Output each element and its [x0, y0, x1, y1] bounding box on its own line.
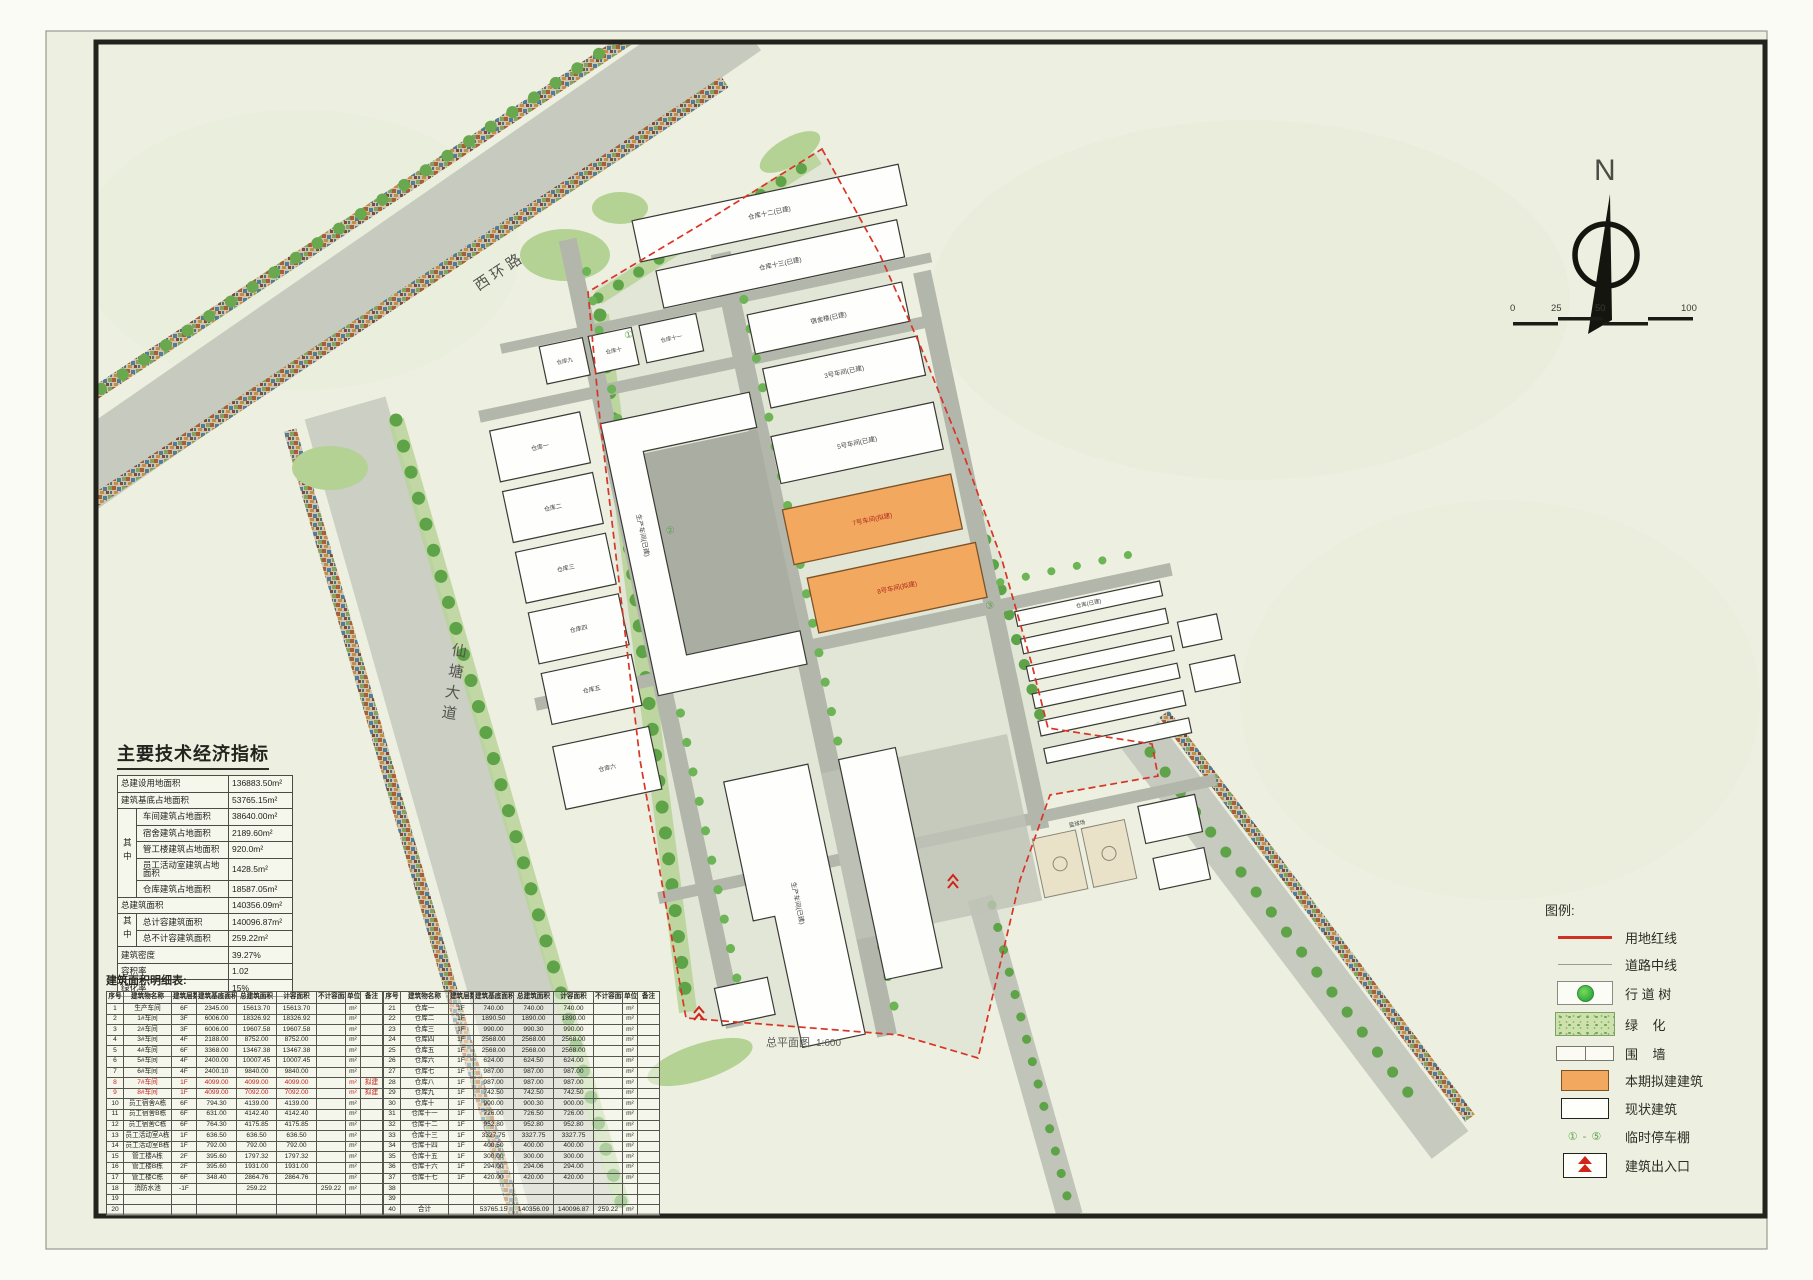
table-cell: 37	[384, 1173, 401, 1184]
table-cell: 员工宿舍C栋	[124, 1120, 172, 1131]
table-cell: 25	[384, 1046, 401, 1057]
column-header: 建筑基底面积	[197, 992, 237, 1004]
paper-blotch	[1240, 500, 1760, 900]
table-cell: 仓库八	[401, 1078, 449, 1089]
proposed-swatch	[1561, 1070, 1609, 1091]
table-cell: m²	[346, 1035, 361, 1046]
table-cell: 仓库六	[401, 1056, 449, 1067]
table-row: 32仓库十二1F952.80952.80952.80m²	[384, 1120, 660, 1131]
table-cell: 19607.58	[237, 1025, 277, 1036]
table-row: 34仓库十四1F400.50400.00400.00m²	[384, 1141, 660, 1152]
table-cell: 4F	[172, 1056, 197, 1067]
table-cell	[317, 1004, 346, 1015]
table-cell: 742.50	[474, 1088, 514, 1099]
table-cell: 2#车间	[124, 1025, 172, 1036]
table-row: 37仓库十七1F420.00420.00420.00m²	[384, 1173, 660, 1184]
table-cell	[277, 1184, 317, 1195]
table-cell	[237, 1205, 277, 1216]
table-cell	[638, 1173, 660, 1184]
table-row: 21#车间3F6006.0018326.9218326.92m²	[107, 1014, 383, 1025]
table-cell: 3327.75	[554, 1131, 594, 1142]
legend-swatch-column	[1545, 1153, 1625, 1178]
table-cell: 395.60	[197, 1162, 237, 1173]
table-cell	[317, 1141, 346, 1152]
legend-swatch-column	[1545, 1070, 1625, 1091]
indicator-label: 宿舍建筑占地面积	[136, 825, 228, 842]
indicator-value: 140356.09m²	[229, 897, 293, 914]
table-header-row: 序号建筑物名称建筑层数建筑基底面积总建筑面积计容面积不计容面积单位备注	[107, 992, 383, 1004]
table-cell: m²	[623, 1035, 638, 1046]
table-cell: 8752.00	[277, 1035, 317, 1046]
table-cell: 900.00	[474, 1099, 514, 1110]
table-cell: 29	[384, 1088, 401, 1099]
indicator-row: 其中车间建筑占地面积38640.00m²	[118, 809, 293, 826]
table-cell: 987.00	[514, 1078, 554, 1089]
table-cell: 140096.87	[554, 1205, 594, 1216]
table-cell: m²	[346, 1162, 361, 1173]
entrance-swatch	[1563, 1153, 1607, 1178]
indicator-group-label: 其中	[122, 838, 131, 865]
legend-panel: 图例: 用地红线道路中线行 道 树绿 化围 墙本期拟建建筑现状建筑① - ⑤临时…	[1545, 900, 1750, 1185]
table-cell: 400.00	[554, 1141, 594, 1152]
table-cell: -1F	[172, 1184, 197, 1195]
indicators-table: 总建设用地面积136883.50m²建筑基底占地面积53765.15m²其中车间…	[117, 775, 293, 997]
table-cell: m²	[623, 1078, 638, 1089]
table-cell: 1F	[172, 1141, 197, 1152]
indicator-row: 管工楼建筑占地面积920.0m²	[118, 842, 293, 859]
table-row: 25仓库五1F2568.002568.002568.00m²	[384, 1046, 660, 1057]
table-cell: 1797.32	[277, 1152, 317, 1163]
indicator-row: 建筑基底占地面积53765.15m²	[118, 792, 293, 809]
building-area-panel: 建筑面积明细表: 序号建筑物名称建筑层数建筑基底面积总建筑面积计容面积不计容面积…	[106, 972, 658, 1216]
table-row: 65#车间4F2400.0010007.4510007.45m²	[107, 1056, 383, 1067]
table-cell	[172, 1205, 197, 1216]
table-cell	[449, 1205, 474, 1216]
table-cell: 34	[384, 1141, 401, 1152]
table-cell	[317, 1099, 346, 1110]
table-cell	[197, 1205, 237, 1216]
table-cell: 1F	[172, 1088, 197, 1099]
table-cell	[317, 1152, 346, 1163]
column-header: 建筑层数	[449, 992, 474, 1004]
table-cell: 16	[107, 1162, 124, 1173]
column-header: 单位	[623, 992, 638, 1004]
table-cell: 792.00	[277, 1141, 317, 1152]
table-cell: 2568.00	[554, 1035, 594, 1046]
table-cell: 1F	[449, 1078, 474, 1089]
north-label: N	[1594, 154, 1616, 187]
legend-swatch-column	[1545, 964, 1625, 965]
table-cell: 6F	[172, 1173, 197, 1184]
table-cell: 742.50	[554, 1088, 594, 1099]
legend-item: ① - ⑤临时停车棚	[1545, 1126, 1750, 1146]
table-cell: 987.00	[514, 1067, 554, 1078]
column-header: 备注	[361, 992, 383, 1004]
indicator-label: 总不计容建筑面积	[136, 930, 228, 947]
table-cell: m²	[346, 1046, 361, 1057]
building-area-table-right: 序号建筑物名称建筑层数建筑基底面积总建筑面积计容面积不计容面积单位备注21仓库一…	[383, 991, 660, 1216]
table-cell: 1	[107, 1004, 124, 1015]
scale-tick: 50	[1595, 303, 1606, 314]
table-cell: 3368.00	[197, 1046, 237, 1057]
table-cell	[638, 1184, 660, 1195]
table-cell: 1890.00	[554, 1014, 594, 1025]
table-cell	[401, 1194, 449, 1205]
table-cell	[554, 1194, 594, 1205]
indicator-row: 总建设用地面积136883.50m²	[118, 776, 293, 793]
table-cell: 15	[107, 1152, 124, 1163]
table-cell: 1F	[449, 1152, 474, 1163]
table-cell: 管工楼A栋	[124, 1152, 172, 1163]
table-cell: 18	[107, 1184, 124, 1195]
table-cell: 1F	[449, 1162, 474, 1173]
legend-label: 用地红线	[1625, 928, 1677, 947]
table-row: 23仓库三1F990.00990.30990.00m²	[384, 1025, 660, 1036]
table-cell: 5	[107, 1046, 124, 1057]
street-tree-swatch	[1557, 981, 1613, 1005]
table-cell: 2400.00	[197, 1056, 237, 1067]
table-cell: 987.00	[474, 1078, 514, 1089]
indicator-row: 其中总计容建筑面积140096.87m²	[118, 914, 293, 931]
red-line-swatch	[1558, 936, 1612, 939]
table-cell: 1F	[449, 1025, 474, 1036]
table-cell	[638, 1067, 660, 1078]
table-cell	[594, 1141, 623, 1152]
table-cell: m²	[623, 1152, 638, 1163]
column-header: 单位	[346, 992, 361, 1004]
table-row: 54#车间6F3368.0013467.3813467.38m²	[107, 1046, 383, 1057]
indicator-value: 39.27%	[229, 947, 293, 964]
table-cell: 4142.40	[237, 1109, 277, 1120]
table-cell	[594, 1025, 623, 1036]
indicator-row: 宿舍建筑占地面积2189.60m²	[118, 825, 293, 842]
table-cell: 952.80	[474, 1120, 514, 1131]
table-cell	[594, 1120, 623, 1131]
table-cell: 987.00	[554, 1078, 594, 1089]
table-cell	[317, 1046, 346, 1057]
table-cell: 792.00	[197, 1141, 237, 1152]
table-cell	[514, 1184, 554, 1195]
table-cell	[361, 1131, 383, 1142]
table-cell: 420.00	[554, 1173, 594, 1184]
table-cell: 1F	[449, 1173, 474, 1184]
indicator-group-label: 其中	[122, 916, 131, 943]
wall-swatch	[1556, 1046, 1614, 1061]
table-cell: 仓库一	[401, 1004, 449, 1015]
indicator-value: 920.0m²	[229, 842, 293, 859]
table-cell: 消防水池	[124, 1184, 172, 1195]
indicator-row: 建筑密度39.27%	[118, 947, 293, 964]
table-cell: 2345.00	[197, 1004, 237, 1015]
table-cell: 726.00	[474, 1109, 514, 1120]
table-cell: 13	[107, 1131, 124, 1142]
table-cell: 624.00	[554, 1056, 594, 1067]
table-cell: 15613.70	[277, 1004, 317, 1015]
table-cell	[623, 1184, 638, 1195]
table-cell: 32	[384, 1120, 401, 1131]
table-cell: m²	[346, 1131, 361, 1142]
table-cell	[594, 1035, 623, 1046]
table-cell: 仓库十六	[401, 1162, 449, 1173]
table-cell: m²	[346, 1099, 361, 1110]
table-cell: 4175.85	[277, 1120, 317, 1131]
table-cell: 8752.00	[237, 1035, 277, 1046]
caption-text: 总平面图	[766, 1035, 810, 1049]
table-row: 29仓库九1F742.50742.50742.50m²	[384, 1088, 660, 1099]
table-cell: 仓库十七	[401, 1173, 449, 1184]
indicator-label: 总计容建筑面积	[136, 914, 228, 931]
column-header: 计容面积	[277, 992, 317, 1004]
indicator-label: 建筑密度	[118, 947, 229, 964]
table-row: 17管工楼C栋6F348.402864.762864.76m²	[107, 1173, 383, 1184]
table-row: 24仓库四1F2568.002568.002568.00m²	[384, 1035, 660, 1046]
indicator-value: 259.22m²	[229, 930, 293, 947]
table-cell: 10007.45	[237, 1056, 277, 1067]
column-header: 序号	[107, 992, 124, 1004]
table-cell	[317, 1131, 346, 1142]
table-cell: 2568.00	[514, 1035, 554, 1046]
indicator-value: 140096.87m²	[229, 914, 293, 931]
table-cell	[361, 1109, 383, 1120]
paper-blotch	[930, 120, 1570, 480]
table-cell: m²	[623, 1120, 638, 1131]
table-row: 35仓库十五1F300.00300.00300.00m²	[384, 1152, 660, 1163]
table-cell: 4F	[172, 1035, 197, 1046]
table-cell: 6	[107, 1056, 124, 1067]
table-cell: 2864.76	[237, 1173, 277, 1184]
table-cell: 仓库十	[401, 1099, 449, 1110]
table-cell: 6F	[172, 1004, 197, 1015]
scale-tick: 25	[1551, 303, 1562, 314]
table-cell: 8	[107, 1078, 124, 1089]
table-cell: 952.80	[514, 1120, 554, 1131]
indicators-title: 主要技术经济指标	[117, 740, 269, 770]
table-cell: 990.30	[514, 1025, 554, 1036]
table-cell: 拟建	[361, 1078, 383, 1089]
table-cell: 仓库七	[401, 1067, 449, 1078]
table-cell	[594, 1152, 623, 1163]
table-cell: m²	[623, 1162, 638, 1173]
legend-label: 建筑出入口	[1625, 1156, 1690, 1175]
table-cell	[361, 1025, 383, 1036]
table-cell	[638, 1109, 660, 1120]
table-cell: m²	[623, 1131, 638, 1142]
table-cell: m²	[346, 1184, 361, 1195]
table-cell: 1F	[449, 1131, 474, 1142]
table-cell	[317, 1056, 346, 1067]
table-cell: 900.00	[554, 1099, 594, 1110]
table-cell: m²	[346, 1014, 361, 1025]
table-header-row: 序号建筑物名称建筑层数建筑基底面积总建筑面积计容面积不计容面积单位备注	[384, 992, 660, 1004]
column-header: 建筑层数	[172, 992, 197, 1004]
column-header: 建筑基底面积	[474, 992, 514, 1004]
table-cell: 4099.00	[237, 1078, 277, 1089]
table-cell: 1F	[172, 1078, 197, 1089]
table-cell	[346, 1194, 361, 1205]
scale-tick: 100	[1681, 303, 1697, 314]
table-cell	[317, 1035, 346, 1046]
table-cell	[317, 1205, 346, 1216]
table-cell: 990.00	[474, 1025, 514, 1036]
table-cell	[317, 1078, 346, 1089]
legend-item: 围 墙	[1545, 1043, 1750, 1063]
table-cell: 4#车间	[124, 1046, 172, 1057]
indicator-label: 员工活动室建筑占地面积	[136, 858, 228, 881]
table-cell: 140356.09	[514, 1205, 554, 1216]
indicator-value: 1428.5m²	[229, 858, 293, 881]
table-cell: 3327.75	[514, 1131, 554, 1142]
table-cell: 合计	[401, 1205, 449, 1216]
legend-swatch-column	[1545, 1012, 1625, 1036]
table-row: 28仓库八1F987.00987.00987.00m²	[384, 1078, 660, 1089]
table-cell: m²	[623, 1046, 638, 1057]
table-cell	[594, 1088, 623, 1099]
indicator-group-cell: 其中	[118, 914, 137, 947]
table-cell: 管工楼C栋	[124, 1173, 172, 1184]
table-cell: 39	[384, 1194, 401, 1205]
legend-label: 本期拟建建筑	[1625, 1071, 1703, 1090]
table-cell: 259.22	[317, 1184, 346, 1195]
center-line-swatch	[1558, 964, 1612, 965]
indicators-panel: 主要技术经济指标 总建设用地面积136883.50m²建筑基底占地面积53765…	[117, 740, 293, 997]
column-header: 序号	[384, 992, 401, 1004]
table-cell	[594, 1067, 623, 1078]
table-cell: 294.06	[514, 1162, 554, 1173]
indicator-label: 管工楼建筑占地面积	[136, 842, 228, 859]
table-cell	[172, 1194, 197, 1205]
table-cell: 2864.76	[277, 1173, 317, 1184]
table-cell	[361, 1014, 383, 1025]
table-cell: 987.00	[554, 1067, 594, 1078]
table-cell: 742.50	[514, 1088, 554, 1099]
table-cell: m²	[346, 1025, 361, 1036]
indicator-value: 136883.50m²	[229, 776, 293, 793]
table-cell	[474, 1184, 514, 1195]
table-cell	[361, 1046, 383, 1057]
table-cell: m²	[623, 1014, 638, 1025]
table-cell	[594, 1078, 623, 1089]
legend-swatch-column	[1545, 981, 1625, 1005]
table-cell	[638, 1099, 660, 1110]
table-cell: 300.00	[474, 1152, 514, 1163]
table-cell: 631.00	[197, 1109, 237, 1120]
indicator-label: 建筑基底占地面积	[118, 792, 229, 809]
table-cell: 400.50	[474, 1141, 514, 1152]
table-cell: m²	[623, 1088, 638, 1099]
table-cell: 1F	[172, 1131, 197, 1142]
table-cell: m²	[346, 1056, 361, 1067]
table-cell	[638, 1194, 660, 1205]
table-cell	[638, 1088, 660, 1099]
table-cell: 2568.00	[474, 1046, 514, 1057]
legend-item: 现状建筑	[1545, 1098, 1750, 1119]
table-cell	[361, 1205, 383, 1216]
table-cell: 348.40	[197, 1173, 237, 1184]
table-cell: 4175.85	[237, 1120, 277, 1131]
table-cell	[594, 1184, 623, 1195]
legend-swatch-column	[1545, 1046, 1625, 1061]
indicator-row: 员工活动室建筑占地面积1428.5m²	[118, 858, 293, 881]
table-cell: 24	[384, 1035, 401, 1046]
table-cell: 900.30	[514, 1099, 554, 1110]
table-cell: 10007.45	[277, 1056, 317, 1067]
table-cell	[623, 1194, 638, 1205]
table-cell: 294.00	[554, 1162, 594, 1173]
building-area-title: 建筑面积明细表:	[106, 972, 658, 988]
table-cell: 259.22	[594, 1205, 623, 1216]
table-row: 12员工宿舍C栋6F764.304175.854175.85m²	[107, 1120, 383, 1131]
table-cell: 987.00	[474, 1067, 514, 1078]
indicator-label: 车间建筑占地面积	[136, 809, 228, 826]
table-row: 16管工楼B栋2F395.601931.001931.00m²	[107, 1162, 383, 1173]
table-cell: m²	[346, 1067, 361, 1078]
table-cell	[124, 1194, 172, 1205]
indicator-row: 总建筑面积140356.09m²	[118, 897, 293, 914]
table-cell: 9	[107, 1088, 124, 1099]
table-cell	[317, 1025, 346, 1036]
table-cell: 28	[384, 1078, 401, 1089]
table-cell: 40	[384, 1205, 401, 1216]
table-cell: m²	[623, 1025, 638, 1036]
legend-item: 绿 化	[1545, 1012, 1750, 1036]
table-row: 33仓库十三1F3327.753327.753327.75m²	[384, 1131, 660, 1142]
table-cell	[361, 1184, 383, 1195]
table-cell: 4139.00	[277, 1099, 317, 1110]
table-cell: 21	[384, 1004, 401, 1015]
table-cell: 仓库五	[401, 1046, 449, 1057]
table-cell: 31	[384, 1109, 401, 1120]
table-cell: 38	[384, 1184, 401, 1195]
table-cell: 36	[384, 1162, 401, 1173]
legend-label: 现状建筑	[1625, 1099, 1677, 1118]
table-cell: 12	[107, 1120, 124, 1131]
table-cell	[317, 1194, 346, 1205]
table-cell: 2	[107, 1014, 124, 1025]
table-cell: 19607.58	[277, 1025, 317, 1036]
table-row: 38	[384, 1184, 660, 1195]
table-row: 1生产车间6F2345.0015613.7015613.70m²	[107, 1004, 383, 1015]
building-area-table-left: 序号建筑物名称建筑层数建筑基底面积总建筑面积计容面积不计容面积单位备注1生产车间…	[106, 991, 383, 1216]
table-cell	[594, 1109, 623, 1120]
table-cell: 6F	[172, 1120, 197, 1131]
table-row: 14员工活动室B栋1F792.00792.00792.00m²	[107, 1141, 383, 1152]
table-cell: 仓库三	[401, 1025, 449, 1036]
table-cell: 35	[384, 1152, 401, 1163]
table-cell: 仓库四	[401, 1035, 449, 1046]
table-cell: 1F	[449, 1035, 474, 1046]
table-cell: 9840.00	[237, 1067, 277, 1078]
entrance-chevron-icon	[1578, 1164, 1592, 1172]
table-cell	[361, 1194, 383, 1205]
column-header: 建筑物名称	[124, 992, 172, 1004]
table-row: 87#车间1F4099.004099.004099.00m²拟建	[107, 1078, 383, 1089]
table-cell: m²	[623, 1004, 638, 1015]
table-row: 21仓库一1F740.00740.00740.00m²	[384, 1004, 660, 1015]
table-cell: 764.30	[197, 1120, 237, 1131]
table-cell: 7092.00	[277, 1088, 317, 1099]
table-row: 76#车间4F2400.109840.009840.00m²	[107, 1067, 383, 1078]
table-cell	[594, 1099, 623, 1110]
legend-label: 道路中线	[1625, 955, 1677, 974]
column-header: 总建筑面积	[237, 992, 277, 1004]
table-cell: 11	[107, 1109, 124, 1120]
table-cell: 1F	[449, 1120, 474, 1131]
table-row: 11员工宿舍B栋6F631.004142.404142.40m²	[107, 1109, 383, 1120]
table-cell: m²	[346, 1152, 361, 1163]
legend-label: 绿 化	[1625, 1015, 1665, 1034]
table-cell	[594, 1004, 623, 1015]
table-cell: 13467.38	[237, 1046, 277, 1057]
